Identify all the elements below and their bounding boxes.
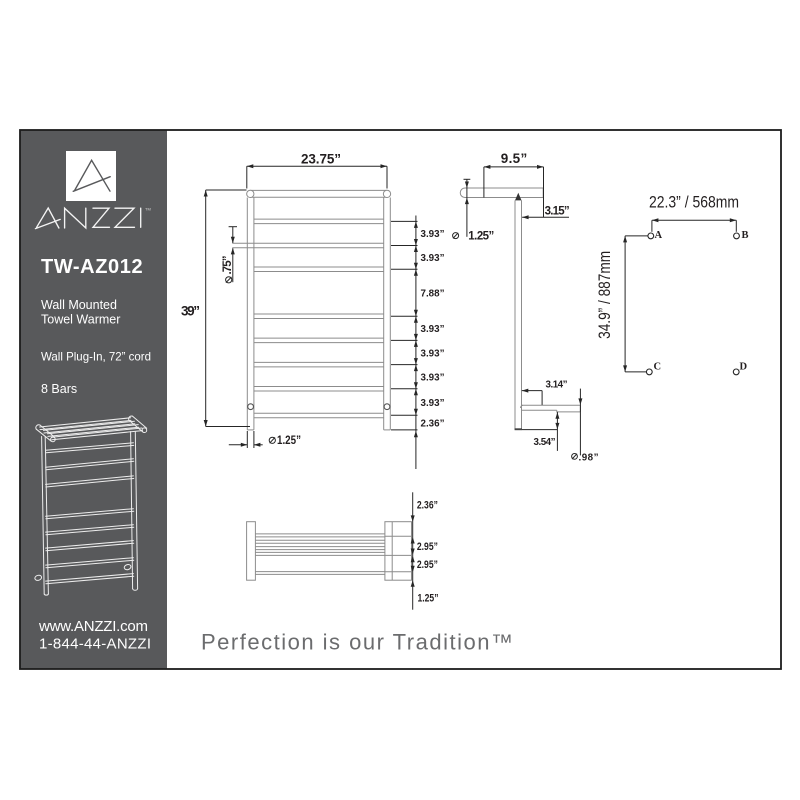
svg-text:1.25”: 1.25”: [418, 592, 439, 604]
svg-text:Towel Warmer: Towel Warmer: [41, 313, 120, 327]
svg-text:39”: 39”: [181, 304, 200, 319]
svg-text:3.54”: 3.54”: [534, 437, 556, 448]
svg-text:Wall Mounted: Wall Mounted: [41, 298, 117, 312]
svg-text:3.93”: 3.93”: [421, 253, 445, 264]
svg-text:2.36”: 2.36”: [417, 500, 438, 512]
svg-text:C: C: [654, 362, 662, 373]
svg-text:2.95”: 2.95”: [417, 559, 438, 571]
svg-text:.75”: .75”: [222, 256, 234, 275]
svg-text:3.15”: 3.15”: [545, 206, 570, 218]
svg-text:Perfection is our Tradition™: Perfection is our Tradition™: [201, 630, 514, 655]
svg-text:7.88”: 7.88”: [421, 289, 445, 300]
svg-text:1.25”: 1.25”: [468, 230, 494, 242]
svg-text:A: A: [655, 230, 663, 241]
svg-text:3.93”: 3.93”: [421, 229, 445, 240]
svg-text:Wall Plug-In, 72” cord: Wall Plug-In, 72” cord: [41, 350, 151, 364]
svg-text:.98”: .98”: [579, 452, 599, 463]
svg-text:3.14”: 3.14”: [546, 380, 568, 391]
svg-text:3.93”: 3.93”: [421, 398, 445, 409]
svg-text:3.93”: 3.93”: [421, 373, 445, 384]
svg-text:1-844-44-ANZZI: 1-844-44-ANZZI: [39, 636, 151, 653]
svg-text:B: B: [742, 230, 749, 241]
svg-text:D: D: [740, 362, 748, 373]
svg-text:34.9” / 887mm: 34.9” / 887mm: [595, 251, 614, 339]
svg-text:22.3” / 568mm: 22.3” / 568mm: [649, 193, 739, 212]
svg-text:2.95”: 2.95”: [417, 541, 438, 553]
svg-text:3.93”: 3.93”: [421, 348, 445, 359]
svg-text:8 Bars: 8 Bars: [41, 382, 77, 396]
svg-text:9.5”: 9.5”: [501, 151, 528, 166]
svg-text:3.93”: 3.93”: [421, 324, 445, 335]
svg-text:1.25”: 1.25”: [277, 435, 301, 447]
svg-text:2.36”: 2.36”: [421, 418, 445, 429]
svg-text:23.75”: 23.75”: [301, 152, 341, 167]
svg-text:TM: TM: [145, 207, 151, 212]
svg-text:TW-AZ012: TW-AZ012: [41, 256, 143, 278]
svg-text:www.ANZZI.com: www.ANZZI.com: [38, 618, 148, 635]
